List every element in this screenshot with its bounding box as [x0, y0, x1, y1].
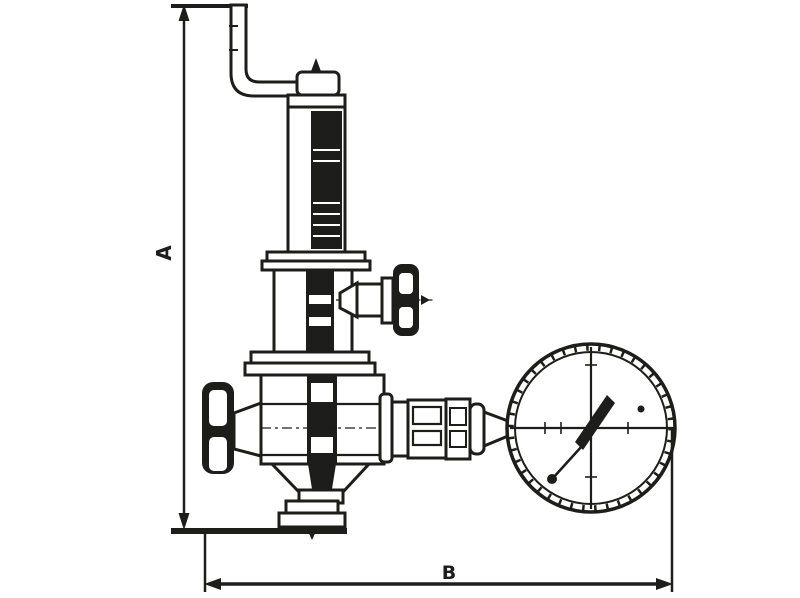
housing-cap [297, 72, 339, 95]
bonnet-stem-slot [309, 295, 331, 304]
side-handwheel-slot [399, 273, 413, 294]
pipe-outline [231, 5, 299, 96]
bonnet-stem-slot [309, 317, 331, 326]
dimension-a-label: A [152, 245, 176, 261]
side-valve-collar [382, 278, 393, 323]
side-handwheel-slot [399, 307, 413, 328]
body-inner-slot [311, 383, 333, 402]
technical-drawing-page: A [0, 0, 800, 598]
main-flange-lower [245, 363, 375, 375]
dimension-b-arrow-left-icon [204, 578, 221, 590]
gauge-max-marker-dot [638, 406, 645, 413]
side-valve-tip [421, 295, 430, 305]
inlet-handwheel-slot [209, 437, 227, 471]
bonnet-stem-column [306, 270, 334, 352]
spring-section [311, 111, 342, 249]
gauge-line-flange [380, 394, 392, 462]
gauge-line-block [392, 402, 408, 456]
outlet-flange-lower [279, 513, 345, 527]
valve-dimension-drawing: A [0, 0, 800, 598]
inlet-stem-cone [234, 403, 261, 456]
body-inner-slot [311, 437, 333, 453]
main-flange [245, 352, 375, 375]
pressure-gauge [507, 344, 676, 512]
inlet-handwheel-assembly [202, 382, 261, 474]
gauge-needle-hub [547, 474, 557, 484]
discharge-elbow-pipe [229, 5, 299, 96]
gauge-stub-cone [484, 412, 508, 446]
dimension-a-arrow-down-icon [179, 513, 190, 530]
gauge-connection-fittings [380, 394, 508, 462]
bonnet [274, 270, 352, 352]
outlet-taper-inner [308, 464, 336, 489]
main-flange-upper [251, 352, 369, 363]
side-valve-stem [357, 284, 384, 316]
housing-collar [288, 95, 345, 107]
dimension-b-arrow-right-icon [656, 578, 673, 590]
inlet-handwheel-slot [209, 390, 227, 426]
gauge-line-adapter [470, 404, 484, 454]
bottom-outlet [171, 464, 369, 540]
dimension-b-label: B [442, 562, 456, 584]
